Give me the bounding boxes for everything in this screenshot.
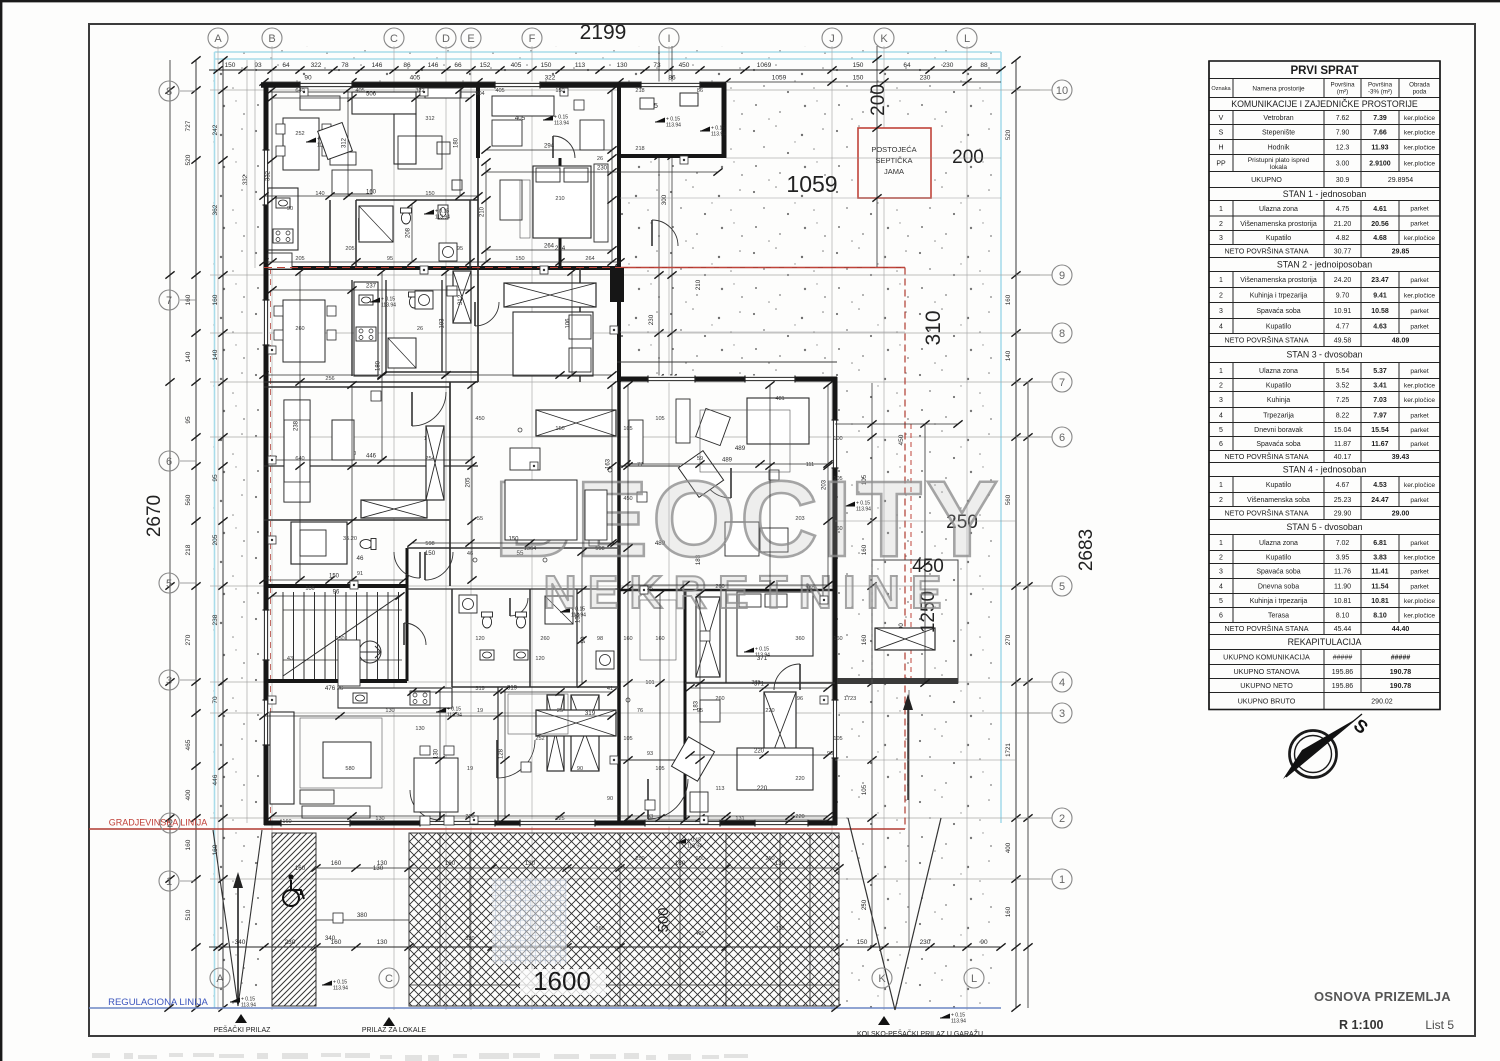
svg-text:6: 6 xyxy=(1059,432,1065,444)
svg-text:44.40: 44.40 xyxy=(1392,626,1410,633)
svg-text:1: 1 xyxy=(1059,874,1065,886)
svg-text:7: 7 xyxy=(1059,377,1065,389)
svg-text:510: 510 xyxy=(185,909,192,920)
svg-text:A: A xyxy=(214,33,222,45)
svg-text:Trpezarija: Trpezarija xyxy=(1263,413,1294,420)
svg-text:300: 300 xyxy=(661,194,668,205)
svg-text:96: 96 xyxy=(797,696,803,702)
svg-text:H: H xyxy=(1218,145,1223,152)
svg-text:11.54: 11.54 xyxy=(1371,584,1388,591)
svg-text:R 1:100: R 1:100 xyxy=(1339,1018,1384,1032)
svg-text:NEKRETNINE: NEKRETNINE xyxy=(543,566,952,618)
svg-text:8.22: 8.22 xyxy=(1336,413,1350,420)
svg-text:195.86: 195.86 xyxy=(1332,683,1354,690)
svg-text:73: 73 xyxy=(653,62,661,69)
svg-text:160: 160 xyxy=(366,190,377,196)
svg-text:12.3: 12.3 xyxy=(1336,145,1350,152)
svg-text:PRILAZ ZA LOKALE: PRILAZ ZA LOKALE xyxy=(362,1027,427,1034)
svg-text:5: 5 xyxy=(166,578,172,590)
svg-text:7.39: 7.39 xyxy=(1373,115,1387,122)
svg-text:640: 640 xyxy=(295,456,304,462)
svg-text:70: 70 xyxy=(212,696,219,704)
svg-text:489: 489 xyxy=(735,445,746,452)
svg-text:580: 580 xyxy=(345,766,354,772)
svg-text:6: 6 xyxy=(1219,613,1223,620)
svg-text:parket: parket xyxy=(1410,412,1428,419)
svg-text:506: 506 xyxy=(366,92,377,98)
svg-text:2: 2 xyxy=(1219,555,1223,562)
svg-text:C: C xyxy=(385,973,393,985)
svg-text:150: 150 xyxy=(541,62,552,69)
svg-text:(m²): (m²) xyxy=(1337,89,1348,96)
svg-text:59: 59 xyxy=(697,456,703,462)
svg-text:Stepenište: Stepenište xyxy=(1262,130,1295,137)
svg-text:ker.pločice: ker.pločice xyxy=(1404,292,1435,299)
svg-text:3.00: 3.00 xyxy=(1336,161,1350,168)
svg-text:1723: 1723 xyxy=(844,696,856,702)
svg-text:lokala: lokala xyxy=(1270,164,1288,171)
svg-text:L: L xyxy=(964,33,970,45)
svg-text:F: F xyxy=(529,33,536,45)
svg-text:25: 25 xyxy=(647,586,653,592)
svg-text:101: 101 xyxy=(645,680,654,686)
svg-text:15.54: 15.54 xyxy=(1371,427,1389,434)
svg-text:3.52: 3.52 xyxy=(1336,383,1350,390)
svg-text:Ulazna zona: Ulazna zona xyxy=(1259,206,1298,213)
svg-text:450: 450 xyxy=(898,434,905,445)
svg-text:Višenamenska prostorija: Višenamenska prostorija xyxy=(1240,277,1317,284)
svg-text:10.81: 10.81 xyxy=(1334,598,1352,605)
svg-text:UKUPNO: UKUPNO xyxy=(1251,175,1282,184)
svg-text:252: 252 xyxy=(295,131,304,137)
svg-text:D: D xyxy=(442,33,450,45)
svg-text:4.63: 4.63 xyxy=(1373,324,1387,331)
svg-text:ker.pločice: ker.pločice xyxy=(1404,482,1435,489)
svg-text:40.17: 40.17 xyxy=(1334,454,1352,461)
svg-text:150: 150 xyxy=(857,939,868,946)
svg-text:ker.pločice: ker.pločice xyxy=(1404,382,1435,389)
svg-text:OSNOVA PRIZEMLJA: OSNOVA PRIZEMLJA xyxy=(1314,989,1451,1004)
svg-text:GRADJEVINSKA LINIJA: GRADJEVINSKA LINIJA xyxy=(109,818,208,828)
svg-text:77: 77 xyxy=(637,462,643,468)
svg-text:30.77: 30.77 xyxy=(1334,249,1352,256)
svg-text:100: 100 xyxy=(833,436,842,442)
svg-text:ker.pločice: ker.pločice xyxy=(1404,129,1435,136)
svg-text:140: 140 xyxy=(212,349,219,360)
svg-text:Spavaća soba: Spavaća soba xyxy=(1256,441,1300,448)
svg-text:Kupatilo: Kupatilo xyxy=(1266,235,1291,242)
svg-text:Kuhinja i trpezarija: Kuhinja i trpezarija xyxy=(1250,293,1308,300)
svg-text:parket: parket xyxy=(1410,206,1428,213)
svg-text:1: 1 xyxy=(1219,482,1223,489)
svg-text:150: 150 xyxy=(555,426,564,432)
svg-text:5: 5 xyxy=(1059,581,1065,593)
svg-text:49.58: 49.58 xyxy=(1334,338,1352,345)
svg-text:405: 405 xyxy=(511,62,522,69)
svg-text:400: 400 xyxy=(1005,842,1012,853)
svg-text:105: 105 xyxy=(833,736,842,742)
svg-text:371: 371 xyxy=(751,680,760,686)
svg-text:4.75: 4.75 xyxy=(1336,206,1350,213)
svg-text:B: B xyxy=(268,33,275,45)
svg-text:19: 19 xyxy=(467,766,473,772)
svg-text:150: 150 xyxy=(853,75,864,82)
svg-text:380: 380 xyxy=(357,912,368,919)
svg-text:160: 160 xyxy=(1005,294,1012,305)
svg-text:ker.pločice: ker.pločice xyxy=(1404,115,1435,122)
svg-text:1: 1 xyxy=(1219,368,1223,375)
svg-text:130: 130 xyxy=(373,865,384,872)
svg-text:2: 2 xyxy=(1219,383,1223,390)
svg-text:95: 95 xyxy=(457,246,463,252)
svg-text:230: 230 xyxy=(920,939,931,946)
svg-text:150: 150 xyxy=(515,256,524,262)
svg-text:78: 78 xyxy=(341,62,349,69)
svg-text:#####: ##### xyxy=(1333,655,1353,662)
svg-text:5: 5 xyxy=(1219,598,1223,605)
svg-text:1364: 1364 xyxy=(524,546,536,552)
svg-text:NETO POVRŠINA STANA: NETO POVRŠINA STANA xyxy=(1224,336,1308,345)
svg-text:294: 294 xyxy=(555,245,566,252)
svg-text:210: 210 xyxy=(555,196,564,202)
svg-text:10.58: 10.58 xyxy=(1371,308,1389,315)
svg-text:98: 98 xyxy=(597,636,603,642)
svg-text:UKUPNO STANOVA: UKUPNO STANOVA xyxy=(1233,667,1299,676)
svg-text:76: 76 xyxy=(637,708,643,714)
svg-text:4: 4 xyxy=(1059,677,1065,689)
svg-text:252: 252 xyxy=(535,736,544,742)
svg-text:290.02: 290.02 xyxy=(1371,699,1393,706)
svg-text:21.20: 21.20 xyxy=(1334,221,1352,228)
svg-text:208: 208 xyxy=(406,227,412,238)
svg-text:465: 465 xyxy=(185,739,192,750)
svg-text:150: 150 xyxy=(329,574,340,580)
svg-text:180: 180 xyxy=(376,360,382,371)
svg-text:11.87: 11.87 xyxy=(1334,441,1351,448)
svg-text:238: 238 xyxy=(212,614,219,625)
svg-text:220: 220 xyxy=(754,749,765,755)
svg-text:6: 6 xyxy=(1219,441,1223,448)
svg-text:ker.pločice: ker.pločice xyxy=(1404,598,1435,605)
svg-text:Vetrobran: Vetrobran xyxy=(1263,115,1293,122)
svg-text:7.97: 7.97 xyxy=(1373,413,1387,420)
svg-text:230: 230 xyxy=(597,166,608,172)
svg-text:254: 254 xyxy=(425,456,434,462)
svg-text:237: 237 xyxy=(366,284,377,290)
svg-text:450: 450 xyxy=(623,496,632,502)
svg-text:L: L xyxy=(971,973,977,985)
svg-text:3: 3 xyxy=(1219,397,1223,404)
svg-text:SEPTIČKA: SEPTIČKA xyxy=(875,156,912,165)
svg-text:11.76: 11.76 xyxy=(1334,569,1351,576)
svg-text:220: 220 xyxy=(757,785,768,792)
svg-text:312: 312 xyxy=(342,137,348,148)
svg-text:405: 405 xyxy=(355,88,364,94)
svg-text:ker.pločice: ker.pločice xyxy=(1404,235,1435,242)
svg-text:Kuhinja: Kuhinja xyxy=(1267,397,1290,404)
svg-text:340: 340 xyxy=(325,935,336,942)
svg-text:STAN 1 - jednosoban: STAN 1 - jednosoban xyxy=(1283,189,1367,199)
svg-text:2: 2 xyxy=(1219,497,1223,504)
svg-text:3.41: 3.41 xyxy=(1373,383,1387,390)
svg-text:160: 160 xyxy=(861,634,868,645)
svg-text:E: E xyxy=(467,33,474,45)
svg-text:103: 103 xyxy=(440,318,446,329)
svg-text:1: 1 xyxy=(1219,277,1223,284)
svg-text:Ulazna zona: Ulazna zona xyxy=(1259,540,1298,547)
svg-text:41: 41 xyxy=(607,686,613,692)
svg-text:20.56: 20.56 xyxy=(1371,221,1389,228)
svg-text:96: 96 xyxy=(827,751,833,757)
svg-text:500: 500 xyxy=(655,907,672,932)
svg-text:160: 160 xyxy=(295,865,306,872)
svg-text:K: K xyxy=(878,973,886,985)
svg-text:4: 4 xyxy=(1219,413,1223,420)
svg-text:24.47: 24.47 xyxy=(1371,497,1389,504)
svg-text:160: 160 xyxy=(833,636,842,642)
svg-text:ker.pločice: ker.pločice xyxy=(1404,554,1435,561)
svg-text:48.09: 48.09 xyxy=(1392,338,1410,345)
svg-text:S: S xyxy=(1219,130,1224,137)
svg-text:29.85: 29.85 xyxy=(1392,249,1410,256)
svg-text:150: 150 xyxy=(425,191,434,197)
svg-text:476: 476 xyxy=(325,685,336,692)
svg-text:205: 205 xyxy=(345,246,354,252)
svg-text:312: 312 xyxy=(425,116,434,122)
svg-text:K: K xyxy=(880,33,888,45)
svg-text:55: 55 xyxy=(477,516,483,522)
svg-text:parket: parket xyxy=(1410,277,1428,284)
svg-text:130: 130 xyxy=(377,939,388,946)
svg-text:PEŠAČKI PRILAZ: PEŠAČKI PRILAZ xyxy=(214,1025,272,1034)
svg-text:205: 205 xyxy=(466,477,472,488)
svg-text:90: 90 xyxy=(304,75,312,82)
svg-text:140: 140 xyxy=(185,351,192,362)
svg-text:26: 26 xyxy=(337,686,343,692)
svg-text:23.47: 23.47 xyxy=(1371,277,1389,284)
svg-text:11.67: 11.67 xyxy=(1371,441,1388,448)
svg-text:26: 26 xyxy=(417,326,423,332)
svg-text:parket: parket xyxy=(1410,540,1428,547)
svg-text:A: A xyxy=(216,973,224,985)
svg-text:225: 225 xyxy=(555,816,564,822)
svg-text:STAN 3 - dvosoban: STAN 3 - dvosoban xyxy=(1286,350,1362,360)
svg-text:86: 86 xyxy=(403,62,411,69)
svg-text:4.61: 4.61 xyxy=(1373,206,1387,213)
svg-text:11.90: 11.90 xyxy=(1334,584,1351,591)
svg-text:95: 95 xyxy=(212,474,219,482)
svg-text:450: 450 xyxy=(679,62,690,69)
svg-text:322: 322 xyxy=(311,62,322,69)
svg-text:Namena prostorije: Namena prostorije xyxy=(1252,85,1305,92)
svg-text:210: 210 xyxy=(695,279,702,290)
svg-text:7.90: 7.90 xyxy=(1336,130,1350,137)
svg-text:8: 8 xyxy=(166,86,172,98)
svg-text:128: 128 xyxy=(499,748,505,759)
svg-text:640: 640 xyxy=(295,88,304,94)
svg-text:8: 8 xyxy=(1059,328,1065,340)
svg-text:35.20: 35.20 xyxy=(343,536,357,542)
svg-text:45.44: 45.44 xyxy=(1334,626,1352,633)
svg-text:96: 96 xyxy=(333,590,340,596)
svg-text:6: 6 xyxy=(166,456,172,468)
svg-text:520: 520 xyxy=(185,154,192,165)
svg-text:STAN 2 - jednoiposoban: STAN 2 - jednoiposoban xyxy=(1277,260,1372,270)
svg-text:ker.pločice: ker.pločice xyxy=(1404,612,1435,619)
svg-text:160: 160 xyxy=(331,860,342,867)
svg-text:2: 2 xyxy=(1219,293,1223,300)
svg-text:30.9: 30.9 xyxy=(1336,177,1350,184)
svg-text:90: 90 xyxy=(577,766,583,772)
svg-text:93: 93 xyxy=(647,814,653,820)
svg-text:450: 450 xyxy=(475,416,484,422)
svg-text:1600: 1600 xyxy=(533,966,591,996)
svg-text:KOMUNIKACIJE I ZAJEDNIČKE PROS: KOMUNIKACIJE I ZAJEDNIČKE PROSTORIJE xyxy=(1231,99,1418,109)
svg-text:294: 294 xyxy=(544,144,555,150)
svg-text:598: 598 xyxy=(595,546,604,552)
svg-text:NETO POVRŠINA STANA: NETO POVRŠINA STANA xyxy=(1224,452,1308,461)
svg-text:Kuhinja i trpezarija: Kuhinja i trpezarija xyxy=(1250,598,1308,605)
svg-text:10.81: 10.81 xyxy=(1371,598,1389,605)
svg-text:J: J xyxy=(829,33,835,45)
svg-text:5.54: 5.54 xyxy=(1336,368,1350,375)
svg-text:39.43: 39.43 xyxy=(1392,454,1410,461)
svg-text:24.20: 24.20 xyxy=(1334,277,1352,284)
svg-text:260: 260 xyxy=(540,636,549,642)
svg-text:91: 91 xyxy=(357,571,363,577)
svg-text:322: 322 xyxy=(545,75,556,82)
svg-text:4: 4 xyxy=(1219,324,1223,331)
svg-text:2.9100: 2.9100 xyxy=(1369,161,1391,168)
svg-text:230: 230 xyxy=(648,314,655,325)
svg-text:7.66: 7.66 xyxy=(1373,130,1387,137)
svg-text:3: 3 xyxy=(1219,235,1223,242)
svg-text:319: 319 xyxy=(475,686,484,692)
svg-text:Višenamenska prostorija: Višenamenska prostorija xyxy=(1240,221,1317,228)
svg-text:264: 264 xyxy=(585,256,594,262)
svg-text:Kupatilo: Kupatilo xyxy=(1266,555,1291,562)
svg-text:7.03: 7.03 xyxy=(1373,397,1387,404)
svg-text:163: 163 xyxy=(606,458,612,469)
svg-text:64: 64 xyxy=(903,62,911,69)
svg-text:95: 95 xyxy=(185,416,192,424)
svg-text:446: 446 xyxy=(366,454,377,460)
svg-text:190.78: 190.78 xyxy=(1390,669,1412,676)
svg-text:parket: parket xyxy=(1410,427,1428,434)
svg-text:3: 3 xyxy=(1059,708,1065,720)
svg-text:4.68: 4.68 xyxy=(1373,235,1387,242)
svg-text:146: 146 xyxy=(428,62,439,69)
svg-text:1: 1 xyxy=(1219,206,1223,213)
svg-text:220: 220 xyxy=(795,814,804,820)
svg-text:90: 90 xyxy=(607,796,613,802)
svg-text:230: 230 xyxy=(943,62,954,69)
svg-text:3: 3 xyxy=(1219,569,1223,576)
svg-text:3.83: 3.83 xyxy=(1373,555,1387,562)
svg-text:7.25: 7.25 xyxy=(1336,397,1350,404)
svg-text:560: 560 xyxy=(185,494,192,505)
svg-text:322: 322 xyxy=(415,88,424,94)
svg-text:5.37: 5.37 xyxy=(1373,368,1387,375)
svg-text:poda: poda xyxy=(1413,89,1427,96)
svg-text:130: 130 xyxy=(415,726,424,732)
svg-text:25: 25 xyxy=(557,708,563,714)
svg-text:520: 520 xyxy=(1005,129,1012,140)
svg-text:Spavaća soba: Spavaća soba xyxy=(1256,569,1300,576)
svg-text:131: 131 xyxy=(735,816,744,822)
svg-text:242: 242 xyxy=(212,124,219,135)
svg-text:105: 105 xyxy=(623,426,632,432)
svg-text:218: 218 xyxy=(185,544,192,555)
svg-text:88: 88 xyxy=(980,62,988,69)
svg-text:5: 5 xyxy=(1219,427,1223,434)
svg-text:360: 360 xyxy=(795,636,804,642)
svg-text:93: 93 xyxy=(647,751,653,757)
svg-text:8.10: 8.10 xyxy=(1373,613,1387,620)
svg-text:parket: parket xyxy=(1410,323,1428,330)
svg-text:1: 1 xyxy=(1219,540,1223,547)
svg-text:ker.pločice: ker.pločice xyxy=(1404,144,1435,151)
svg-text:2199: 2199 xyxy=(580,21,627,44)
svg-text:Ulazna zona: Ulazna zona xyxy=(1259,368,1298,375)
svg-text:371: 371 xyxy=(757,655,768,662)
svg-text:218: 218 xyxy=(635,146,644,152)
svg-text:7.62: 7.62 xyxy=(1336,115,1350,122)
svg-text:270: 270 xyxy=(1005,634,1012,645)
svg-text:95: 95 xyxy=(697,708,703,714)
svg-text:200: 200 xyxy=(868,84,889,116)
svg-text:Kupatilo: Kupatilo xyxy=(1266,324,1291,331)
svg-text:4.77: 4.77 xyxy=(1336,324,1350,331)
svg-text:C: C xyxy=(390,33,398,45)
svg-text:446: 446 xyxy=(212,774,219,785)
svg-text:7: 7 xyxy=(166,295,172,307)
svg-text:Oznaka: Oznaka xyxy=(1211,86,1231,92)
svg-text:113: 113 xyxy=(716,786,725,792)
svg-text:106: 106 xyxy=(566,318,572,329)
svg-text:ker.pločice: ker.pločice xyxy=(1404,160,1435,167)
svg-text:90: 90 xyxy=(980,939,988,946)
svg-text:210: 210 xyxy=(480,206,486,217)
svg-text:6.81: 6.81 xyxy=(1373,540,1387,547)
svg-text:Spavaća soba: Spavaća soba xyxy=(1256,308,1300,315)
svg-text:9: 9 xyxy=(1059,270,1065,282)
svg-text:Višenamenska soba: Višenamenska soba xyxy=(1247,497,1310,504)
svg-text:332: 332 xyxy=(266,170,272,181)
svg-text:9.41: 9.41 xyxy=(1373,293,1387,300)
svg-text:parket: parket xyxy=(1410,308,1428,315)
svg-text:UKUPNO KOMUNIKACIJA: UKUPNO KOMUNIKACIJA xyxy=(1223,653,1310,662)
svg-text:203: 203 xyxy=(822,479,828,490)
svg-text:2: 2 xyxy=(1219,221,1223,228)
svg-text:360: 360 xyxy=(805,586,814,592)
svg-text:Obrada: Obrada xyxy=(1409,82,1430,89)
svg-text:2: 2 xyxy=(167,818,173,830)
svg-text:STAN 4 - jednosoban: STAN 4 - jednosoban xyxy=(1283,465,1367,475)
svg-text:598: 598 xyxy=(425,541,434,547)
svg-text:2670: 2670 xyxy=(144,495,165,537)
svg-text:152: 152 xyxy=(480,62,491,69)
svg-text:7.02: 7.02 xyxy=(1336,540,1350,547)
svg-text:146: 146 xyxy=(372,62,383,69)
svg-text:Hodnik: Hodnik xyxy=(1268,145,1290,152)
svg-text:105: 105 xyxy=(861,784,868,795)
svg-text:150: 150 xyxy=(853,62,864,69)
svg-text:130: 130 xyxy=(375,816,384,822)
svg-text:4.67: 4.67 xyxy=(1336,482,1350,489)
svg-text:90: 90 xyxy=(287,206,293,212)
svg-text:11.93: 11.93 xyxy=(1371,145,1388,152)
